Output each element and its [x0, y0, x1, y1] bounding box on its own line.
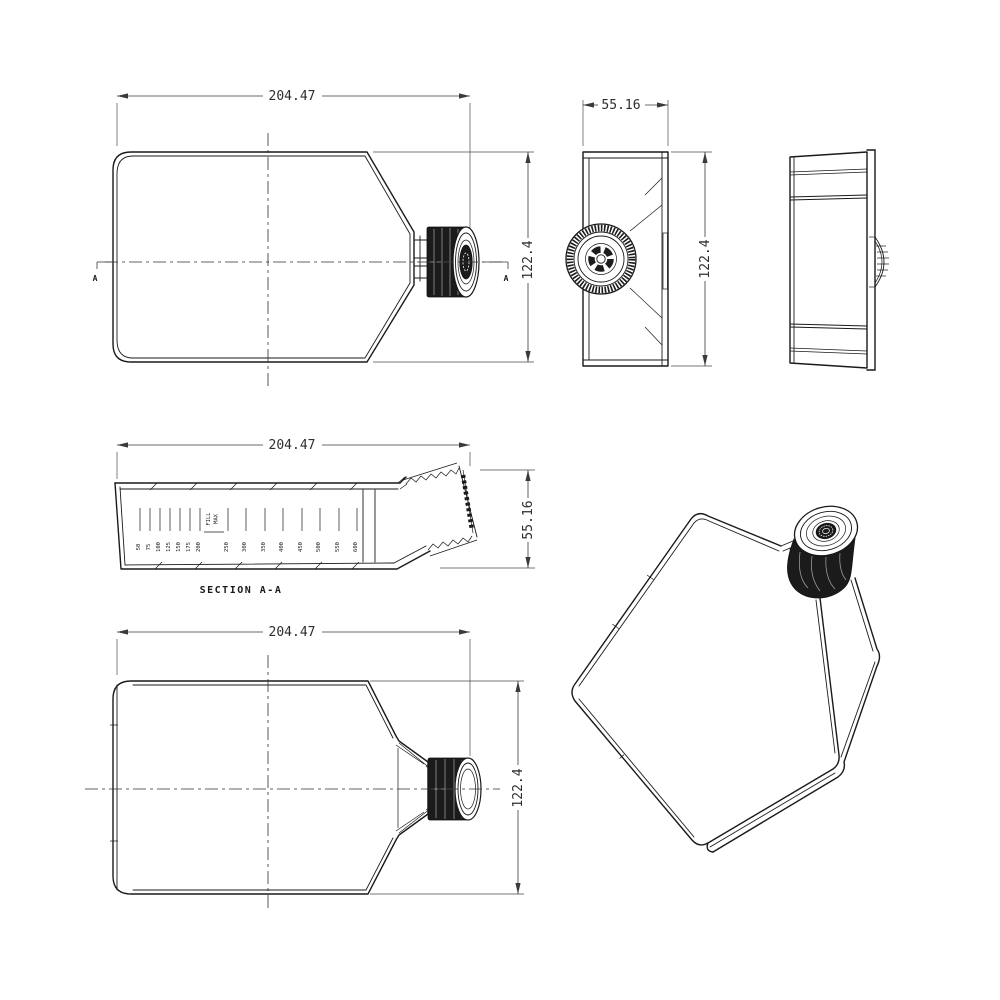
- arrow-down-icon: [525, 351, 530, 362]
- flask-drawing: 204.47: [0, 0, 1000, 1000]
- bottom-height-label: 122.4: [511, 768, 526, 807]
- graduation-label: 50: [136, 544, 142, 551]
- graduation-label: 175: [186, 542, 192, 552]
- graduation-label: 450: [298, 542, 304, 552]
- graduation-label: 250: [224, 542, 230, 552]
- arrow-right-icon: [459, 93, 470, 98]
- graduation-label: 550: [335, 542, 341, 552]
- section-hatch: [150, 483, 359, 569]
- graduation-label: 350: [261, 542, 267, 552]
- side-width-dimension: 55.16: [583, 98, 668, 146]
- bottom-view: 204.47: [85, 625, 526, 912]
- graduation-labels: 50 75 100 125 150 175 200 250 300 350 40…: [136, 542, 359, 552]
- front-width-label: 204.47: [269, 89, 316, 104]
- side-view: 55.16: [566, 98, 713, 366]
- side-width-label: 55.16: [601, 98, 640, 113]
- graduation-ticks: [140, 508, 357, 531]
- front-flask-outline: [113, 152, 427, 362]
- technical-drawing-canvas: 204.47: [0, 0, 1000, 1000]
- front-height-label: 122.4: [521, 240, 536, 279]
- side-height-dimension: 122.4: [671, 152, 713, 366]
- graduation-label: 400: [279, 542, 285, 552]
- front-neck: [414, 236, 427, 281]
- side-cap: [566, 224, 636, 294]
- iso-thickness-band: [707, 578, 879, 852]
- graduation-label: 75: [146, 544, 152, 551]
- section-view: 204.47: [115, 438, 536, 596]
- max-fill-marking: FILL MAX: [204, 512, 224, 532]
- section-caption: SECTION A-A: [200, 585, 283, 596]
- section-width-label: 204.47: [269, 438, 316, 453]
- section-cap: [398, 463, 477, 556]
- graduation-label: 600: [353, 542, 359, 552]
- graduation-label: 500: [316, 542, 322, 552]
- arrow-up-icon: [525, 152, 530, 163]
- arrow-left-icon: [117, 93, 128, 98]
- section-marker-left: A: [93, 274, 98, 283]
- max-fill-label: FILL: [206, 512, 212, 526]
- bottom-width-label: 204.47: [269, 625, 316, 640]
- front-width-dimension: 204.47: [117, 89, 470, 256]
- rear-view: [790, 150, 889, 370]
- bottom-flask-outline: [110, 681, 453, 894]
- rear-flask-outline: [790, 150, 875, 370]
- cap-outer-circle: [566, 224, 636, 294]
- section-body: 50 75 100 125 150 175 200 250 300 350 40…: [115, 477, 430, 569]
- rear-cap-bulge: [869, 237, 889, 287]
- graduation-label: 300: [242, 542, 248, 552]
- graduation-label: 200: [196, 542, 202, 552]
- graduation-label: 100: [156, 542, 162, 552]
- section-height-label: 55.16: [521, 500, 536, 539]
- bottom-width-dimension: 204.47: [117, 625, 470, 756]
- section-width-dimension: 204.47: [117, 438, 470, 479]
- section-marker-right: A: [504, 274, 509, 283]
- front-view: 204.47: [93, 89, 536, 390]
- section-height-dimension: 55.16: [440, 470, 536, 568]
- graduation-label: 150: [176, 542, 182, 552]
- max-fill-label: MAX: [214, 513, 220, 524]
- side-height-label: 122.4: [698, 239, 713, 278]
- graduation-label: 125: [166, 542, 172, 552]
- isometric-view: [572, 499, 880, 852]
